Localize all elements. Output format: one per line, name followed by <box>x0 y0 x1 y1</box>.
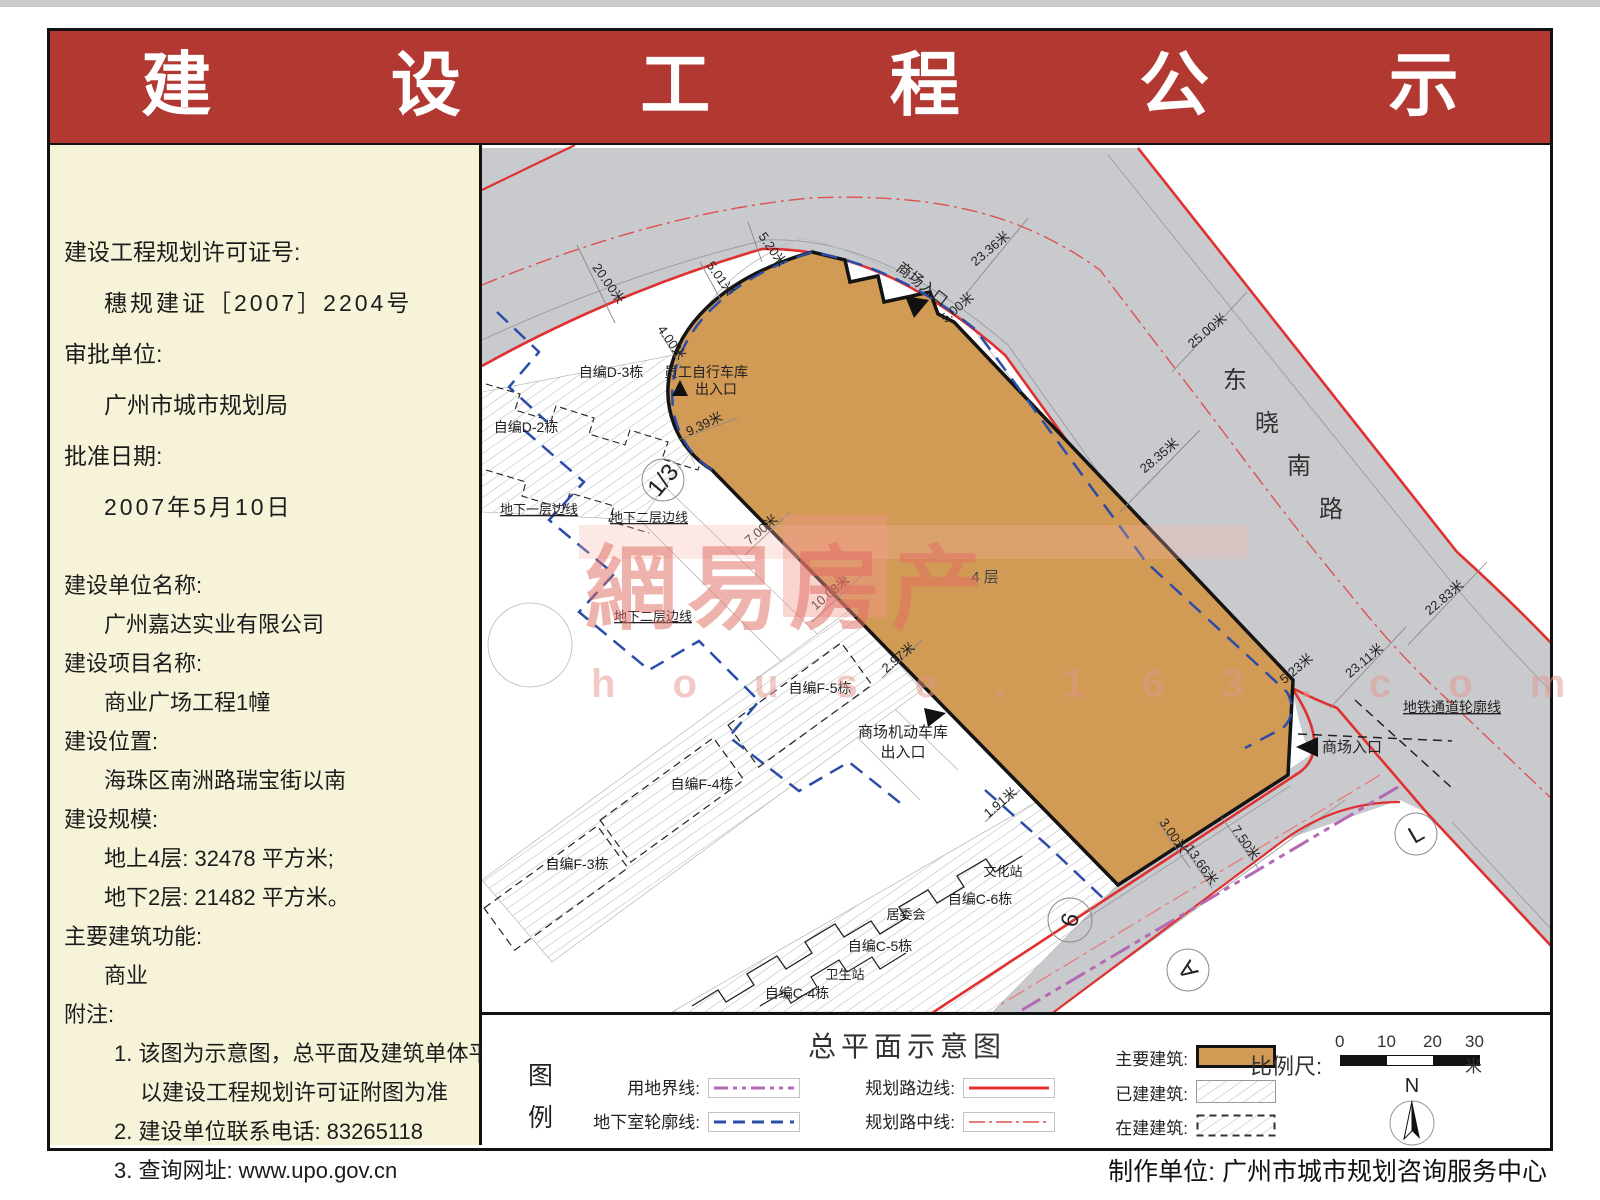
map-label: 4 层 <box>971 569 999 586</box>
map-label: 商场入口 <box>1322 739 1382 756</box>
scalebar-label: 比例尺: <box>1250 1049 1322 1081</box>
map-label: 卫生站 <box>825 967 864 982</box>
info-line: 地下2层: 21482 平方米。 <box>104 880 479 912</box>
info-line: 建设工程规划许可证号: <box>64 233 479 267</box>
page-title: 建 设 工 程 公 示 <box>50 31 1550 139</box>
legend-label-basement: 地下室轮廓线: <box>560 1114 700 1132</box>
info-line: 1. 该图为示意图，总平面及建筑单体平面 <box>114 1036 479 1068</box>
map-label: 地下二层边线 <box>610 510 688 525</box>
scalebar-tick-0: 0 <box>1335 1032 1344 1052</box>
legend-label-under-construction: 在建建筑: <box>1060 1120 1188 1138</box>
info-line: 以建设工程规划许可证附图为准 <box>140 1075 479 1107</box>
info-line: 广州市城市规划局 <box>104 386 479 420</box>
legend-label-road-edge: 规划路边线: <box>827 1080 955 1098</box>
legend-sample-road-center <box>963 1112 1055 1132</box>
map-label: 自编D-3栋 <box>579 364 644 380</box>
info-line: 3. 查询网址: www.upo.gov.cn <box>114 1153 479 1185</box>
scalebar-tick-20: 20 <box>1423 1032 1442 1052</box>
info-lines: 建设工程规划许可证号:穗规建证［2007］2204号审批单位:广州市城市规划局批… <box>50 145 479 1185</box>
info-line: 穗规建证［2007］2204号 <box>104 284 479 318</box>
map-label: 晓 <box>1255 410 1279 437</box>
legend-label-road-center: 规划路中线: <box>827 1114 955 1132</box>
scalebar-seg1 <box>1341 1056 1387 1065</box>
info-line: 建设项目名称: <box>64 646 479 678</box>
info-line: 建设单位名称: <box>64 568 479 600</box>
road-marker-label: L <box>1404 819 1429 849</box>
map-label: 员工自行车库 <box>664 364 748 380</box>
legend-title: 总平面示意图 <box>762 1025 1052 1065</box>
info-line: 建设位置: <box>64 724 479 756</box>
map-label: 文化站 <box>983 864 1022 879</box>
map-label: 东 <box>1223 367 1247 394</box>
map-label: 自编F-4栋 <box>671 776 734 792</box>
map-label: 南 <box>1287 453 1311 480</box>
map-label: 自编D-2栋 <box>494 419 559 435</box>
info-line: 商业 <box>104 958 479 990</box>
title-banner: 建 设 工 程 公 示 <box>50 31 1550 145</box>
scalebar-seg2 <box>1387 1056 1433 1065</box>
legend-label-built: 已建建筑: <box>1060 1086 1188 1104</box>
road-marker-label: A <box>1173 955 1204 984</box>
map-label: 商场机动车库 <box>858 724 948 741</box>
info-line: 地上4层: 32478 平方米; <box>104 841 479 873</box>
map-label: 地下二层边线 <box>614 609 692 624</box>
map-label: 出入口 <box>695 381 737 397</box>
info-line: 主要建筑功能: <box>64 919 479 951</box>
legend-key-label: 图例 <box>528 1055 558 1139</box>
info-line: 批准日期: <box>64 437 479 471</box>
map-label: 出入口 <box>880 744 925 761</box>
map-label: 自编F-5栋 <box>789 680 852 696</box>
scalebar: 0 10 20 30米 <box>1340 1055 1480 1066</box>
north-label: N <box>1380 1075 1444 1098</box>
scan-edge-strip <box>0 0 1600 7</box>
legend-swatch-built <box>1196 1080 1276 1103</box>
info-line: 海珠区南洲路瑞宝街以南 <box>104 763 479 795</box>
info-line: 附注: <box>64 997 479 1029</box>
map-label: 地下一层边线 <box>500 502 578 517</box>
north-arrow: N <box>1380 1075 1444 1145</box>
legend-swatch-under-construction <box>1196 1114 1276 1137</box>
scalebar-tick-30: 30米 <box>1465 1032 1484 1077</box>
site-plan-map: 1/36LA 自编D-2栋自编D-3栋员工自行车库出入口商场入口商场入口商场机动… <box>482 145 1550 1012</box>
map-label: 居委会 <box>886 907 925 922</box>
info-sidebar: 建设工程规划许可证号:穗规建证［2007］2204号审批单位:广州市城市规划局批… <box>50 145 482 1145</box>
map-label: 自编C-4栋 <box>765 985 830 1001</box>
legend-sample-land-boundary <box>708 1078 800 1098</box>
scalebar-tick-10: 10 <box>1377 1032 1396 1052</box>
info-line: 2. 建设单位联系电话: 83265118 <box>114 1114 479 1146</box>
legend-panel: 总平面示意图 图例 用地界线: 地下室轮廓线: 规划路边线: 规划路中线: 主要… <box>482 1012 1550 1145</box>
legend-label-main-building: 主要建筑: <box>1060 1051 1188 1069</box>
info-line: 2007年5月10日 <box>104 488 479 522</box>
north-arrow-icon <box>1380 1098 1444 1148</box>
map-label: 路 <box>1319 496 1343 523</box>
site-plan-svg: 1/36LA 自编D-2栋自编D-3栋员工自行车库出入口商场入口商场入口商场机动… <box>482 145 1550 1012</box>
map-label: 自编C-5栋 <box>848 938 913 954</box>
legend-sample-basement <box>708 1112 800 1132</box>
info-line: 建设规模: <box>64 802 479 834</box>
map-label: 自编F-3栋 <box>546 856 609 872</box>
legend-sample-road-edge <box>963 1078 1055 1098</box>
info-line: 审批单位: <box>64 335 479 369</box>
legend-label-land-boundary: 用地界线: <box>572 1080 700 1098</box>
info-line: 商业广场工程1幢 <box>104 685 479 717</box>
map-label: 自编C-6栋 <box>948 891 1013 907</box>
map-label: 地铁通道轮廓线 <box>1403 699 1501 715</box>
info-line: 广州嘉达实业有限公司 <box>104 607 479 639</box>
producer-footer: 制作单位: 广州市城市规划咨询服务中心 <box>1108 1152 1547 1188</box>
